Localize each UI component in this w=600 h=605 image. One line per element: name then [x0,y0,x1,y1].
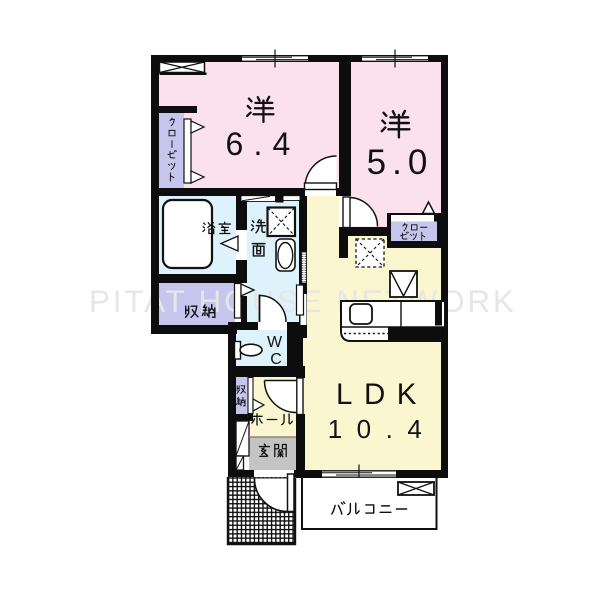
svg-text:6.4: 6.4 [225,126,300,162]
svg-text:5.0: 5.0 [367,143,434,182]
svg-text:LDK: LDK [336,378,428,411]
svg-text:C: C [270,351,282,368]
svg-text:10.4: 10.4 [328,414,437,444]
svg-text:W: W [267,334,283,351]
